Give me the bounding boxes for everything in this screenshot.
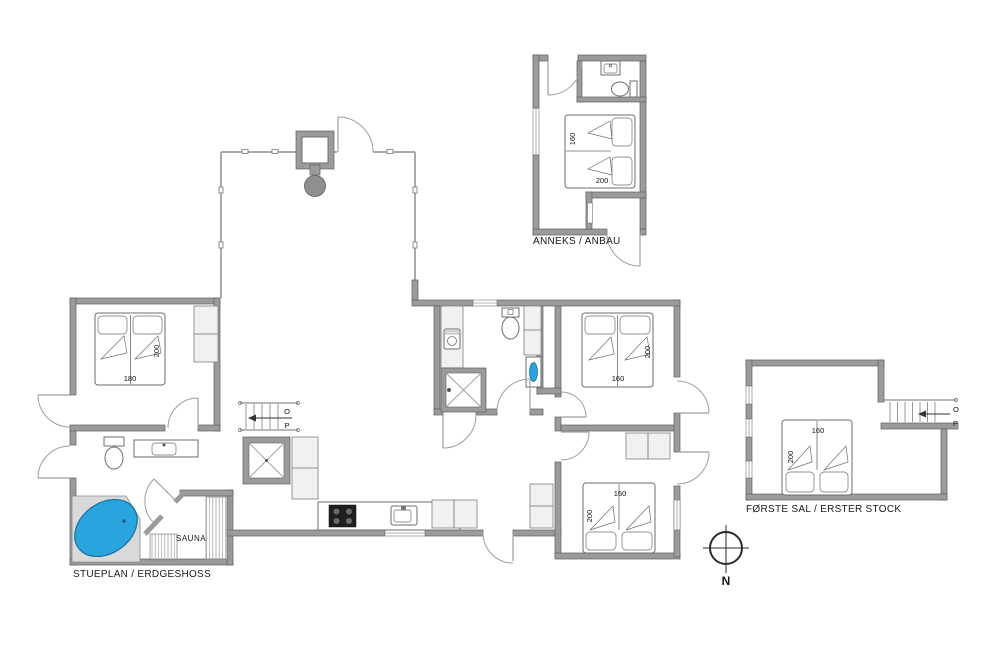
first-floor-label: FØRSTE SAL / ERSTER STOCK	[746, 504, 901, 515]
entrance-door	[483, 533, 513, 563]
left-bed-length: 200	[152, 345, 161, 358]
ground-stairs-up: O	[284, 407, 290, 416]
hall-door	[443, 415, 476, 448]
annex-toilet	[612, 81, 638, 97]
first-stairs-down: P	[953, 419, 958, 428]
right-bottom-bedroom-door	[561, 432, 589, 460]
floor-plan-page: 160 200 ANNEKS / ANBAU	[0, 0, 1000, 667]
first-bed-width: 160	[812, 426, 825, 435]
annex-bed-length: 200	[596, 176, 609, 185]
right-bottom-bed-length: 200	[585, 510, 594, 523]
compass: N	[703, 525, 749, 588]
ground-floor-label: STUEPLAN / ERDGESHOSS	[73, 569, 211, 580]
bathroom	[441, 306, 541, 448]
right-wall-window	[674, 500, 680, 530]
ground-stairs-down: P	[284, 421, 289, 430]
annex-window	[533, 108, 539, 155]
wc-toilet	[104, 437, 124, 469]
washbasin-niche	[526, 357, 541, 387]
annex-bed-width: 160	[568, 133, 577, 146]
washing-machine	[444, 329, 460, 349]
annex-inner-door	[588, 203, 593, 223]
annex-bed: 160 200	[565, 115, 635, 188]
right-top-bed-length: 200	[643, 346, 652, 359]
kitchen-sink	[391, 506, 417, 525]
first-floor-bed: 160 200	[782, 420, 852, 495]
bathroom-door	[497, 379, 530, 412]
right-bottom-bed-width: 160	[614, 489, 627, 498]
shower	[441, 368, 486, 412]
hot-tub	[64, 488, 148, 568]
sliding-terrace-door	[385, 530, 425, 536]
first-floor-windows	[746, 386, 752, 478]
fireplace	[243, 437, 290, 484]
ground-staircase: O P	[239, 402, 300, 432]
cooktop	[329, 505, 356, 527]
wood-stove	[296, 131, 334, 197]
annex-label: ANNEKS / ANBAU	[533, 236, 621, 247]
right-top-bedroom-door	[561, 392, 586, 417]
annex-bath-sink	[601, 61, 620, 75]
first-stairs-up: O	[953, 405, 959, 414]
first-bed-length: 200	[786, 451, 795, 464]
left-bed-width: 180	[124, 374, 137, 383]
right-top-bed-width: 160	[612, 374, 625, 383]
right-exterior-doors	[677, 381, 709, 484]
left-exterior-doors	[38, 395, 70, 478]
floor-plan-drawing: 160 200 ANNEKS / ANBAU	[0, 0, 1000, 667]
left-bedroom-door	[168, 398, 198, 428]
wellness-room: SAUNA	[64, 437, 230, 568]
terrace	[219, 117, 417, 298]
right-top-bed: 160 200	[582, 313, 653, 387]
terrace-door	[338, 117, 373, 152]
left-bedroom-bed: 180 200	[95, 313, 165, 385]
vanity-sink	[134, 440, 198, 457]
compass-north-label: N	[722, 574, 731, 588]
first-floor-plan: O P 160 200 FØRSTE SAL / ERSTER STOCK	[746, 360, 959, 515]
right-bottom-bed: 160 200	[583, 483, 655, 553]
bathroom-toilet	[502, 308, 519, 339]
sauna-label: SAUNA	[176, 534, 206, 543]
right-top-bedroom: 160 200	[561, 313, 653, 417]
annex-plan: 160 200 ANNEKS / ANBAU	[533, 55, 646, 266]
left-bedroom: 180 200	[95, 306, 218, 428]
living-window	[473, 300, 497, 306]
